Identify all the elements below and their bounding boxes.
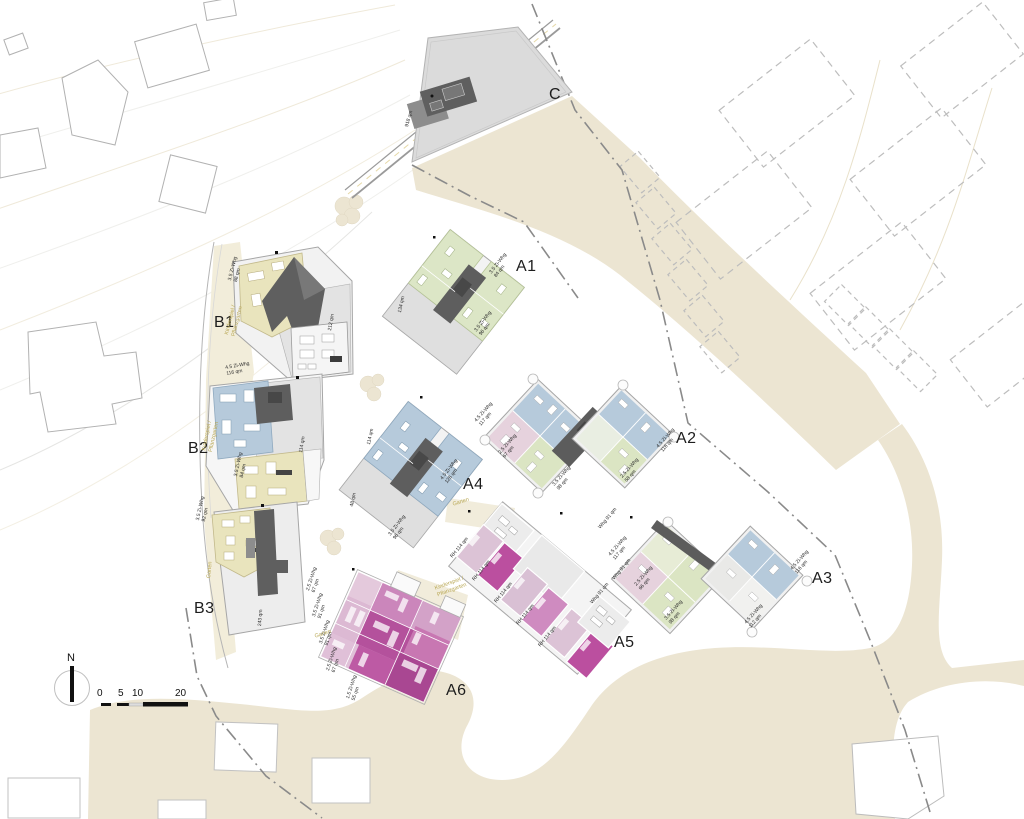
yard-unit bbox=[291, 322, 349, 379]
scale-tick-0: 0 bbox=[97, 688, 103, 699]
scale-tick-5: 5 bbox=[118, 688, 124, 699]
scale-tick-20: 20 bbox=[175, 688, 186, 699]
dark-core bbox=[254, 384, 293, 424]
dark-building bbox=[254, 509, 278, 596]
north-label: N bbox=[67, 652, 75, 664]
north-arrow-icon bbox=[55, 666, 90, 706]
site-plan-drawing bbox=[0, 0, 1024, 819]
label-building-c: C bbox=[549, 86, 561, 104]
building-b2 bbox=[206, 374, 324, 512]
label-building-b3: B3 bbox=[194, 600, 214, 618]
label-building-a4: A4 bbox=[463, 476, 483, 494]
label-building-a5: A5 bbox=[614, 634, 634, 652]
building-a4 bbox=[339, 402, 482, 548]
label-building-a6: A6 bbox=[446, 682, 466, 700]
scale-tick-10: 10 bbox=[132, 688, 143, 699]
site-plan: C A1 A2 A3 A4 A5 A6 B1 B2 B3 918 qm 212 … bbox=[0, 0, 1024, 819]
area-label-b3: 243 qm bbox=[257, 609, 264, 626]
label-building-a1: A1 bbox=[516, 258, 536, 276]
label-building-a3: A3 bbox=[812, 570, 832, 588]
